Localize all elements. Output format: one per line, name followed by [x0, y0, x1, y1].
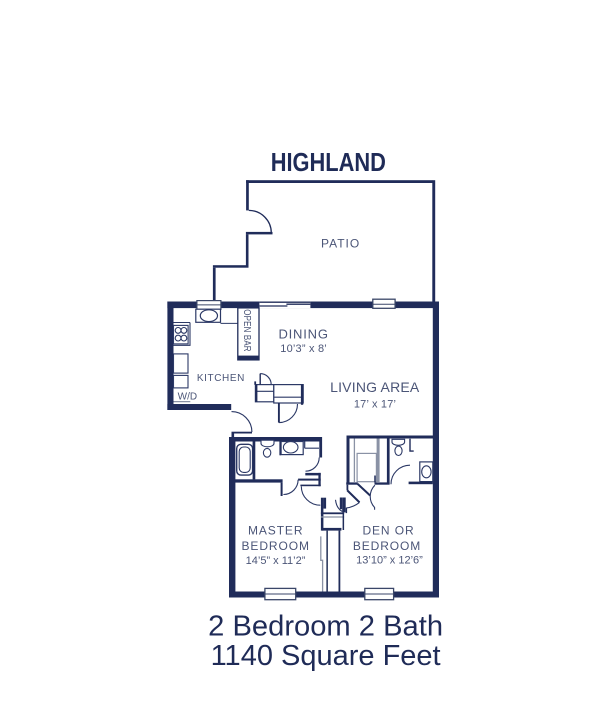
svg-text:14’5” x 11’2”: 14’5” x 11’2”: [246, 555, 306, 567]
svg-text:DEN OR: DEN OR: [362, 524, 414, 538]
svg-text:OPEN BAR: OPEN BAR: [242, 309, 253, 351]
svg-text:LIVING AREA: LIVING AREA: [330, 379, 420, 395]
svg-text:PATIO: PATIO: [321, 236, 360, 250]
svg-text:HIGHLAND: HIGHLAND: [271, 148, 386, 177]
svg-text:BEDROOM: BEDROOM: [242, 539, 310, 553]
svg-text:10’3” x 8’: 10’3” x 8’: [280, 343, 327, 355]
svg-text:2 Bedroom 2 Bath: 2 Bedroom 2 Bath: [208, 611, 443, 643]
svg-text:W/D: W/D: [178, 391, 197, 402]
svg-text:MASTER: MASTER: [248, 524, 303, 538]
svg-text:1140 Square Feet: 1140 Square Feet: [211, 640, 441, 672]
svg-text:13’10” x 12’6”: 13’10” x 12’6”: [356, 555, 423, 567]
svg-text:BEDROOM: BEDROOM: [353, 539, 421, 553]
svg-text:DINING: DINING: [278, 327, 328, 342]
svg-text:17’ x 17’: 17’ x 17’: [354, 399, 396, 411]
svg-text:KITCHEN: KITCHEN: [197, 373, 245, 384]
